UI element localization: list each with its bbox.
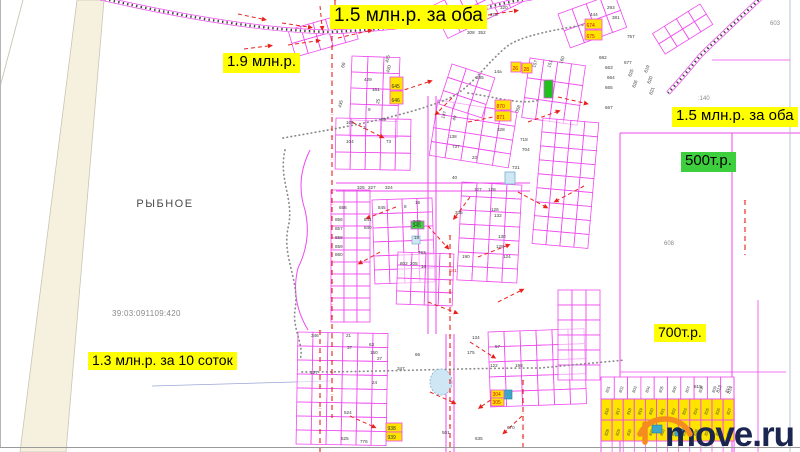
svg-text:293: 293	[607, 5, 615, 10]
svg-text:621: 621	[648, 86, 655, 95]
svg-text:663: 663	[605, 65, 613, 70]
svg-text:656: 656	[339, 205, 347, 210]
svg-text:860: 860	[335, 252, 343, 257]
svg-text:63: 63	[369, 342, 375, 347]
svg-text:381: 381	[612, 15, 620, 20]
svg-text:132: 132	[494, 213, 502, 218]
svg-text:150: 150	[370, 350, 378, 355]
svg-text:619: 619	[643, 64, 650, 73]
svg-text:871: 871	[497, 115, 506, 121]
highlight-parcel	[544, 80, 553, 98]
svg-text:127: 127	[310, 370, 318, 375]
price-label: 500т.р.	[681, 152, 736, 172]
svg-text:16: 16	[421, 264, 427, 269]
map-linework: 8018028038048058068078088098108168178188…	[0, 0, 800, 452]
svg-text:718: 718	[520, 137, 528, 142]
svg-text:737: 737	[452, 144, 460, 149]
svg-text:347: 347	[397, 366, 405, 371]
svg-text:198: 198	[515, 363, 523, 368]
svg-text:320: 320	[500, 5, 508, 10]
svg-text:122: 122	[490, 363, 498, 368]
svg-text:104: 104	[346, 139, 354, 144]
svg-text:731: 731	[512, 165, 520, 170]
svg-text:327: 327	[368, 185, 376, 190]
svg-text:665: 665	[605, 85, 613, 90]
svg-text:444: 444	[590, 12, 598, 17]
svg-text::140: :140	[698, 96, 710, 102]
svg-text:845: 845	[378, 205, 386, 210]
highlight-parcel: 304	[491, 390, 504, 398]
svg-text:308: 308	[467, 30, 475, 35]
svg-text:524: 524	[344, 410, 352, 415]
svg-text:525: 525	[341, 436, 349, 441]
svg-text:635: 635	[475, 436, 483, 441]
svg-text:859: 859	[335, 244, 343, 249]
svg-text:870: 870	[497, 104, 506, 110]
svg-text:190: 190	[462, 254, 470, 259]
svg-text:358: 358	[514, 104, 521, 113]
cadastral-map: 8018028038048058068078088098108168178188…	[0, 0, 800, 452]
map-border-bottom	[0, 447, 800, 448]
svg-text:757: 757	[627, 34, 635, 39]
svg-text:128: 128	[488, 187, 496, 192]
price-label: 700т.р.	[654, 324, 706, 342]
svg-text:57: 57	[495, 344, 501, 349]
svg-text:841: 841	[364, 217, 372, 222]
svg-text:346: 346	[311, 333, 319, 338]
svg-text:126: 126	[491, 207, 499, 212]
svg-text:21: 21	[346, 333, 352, 338]
svg-text:375: 375	[490, 12, 498, 17]
highlight-parcel: 939	[386, 432, 402, 441]
svg-text:675: 675	[587, 34, 596, 40]
svg-text:857: 857	[335, 226, 343, 231]
svg-text:2: 2	[363, 125, 366, 130]
svg-text:129: 129	[496, 244, 504, 249]
svg-text:16: 16	[415, 200, 421, 205]
price-label: 1.9 млн.р.	[223, 53, 300, 73]
svg-text:815: 815	[694, 384, 702, 389]
svg-text:105: 105	[346, 120, 354, 125]
price-label: 1.5 млн.р. за оба	[330, 5, 487, 29]
price-label: 1.3 млн.р. за 10 соток	[88, 352, 237, 370]
svg-text:73: 73	[386, 139, 392, 144]
svg-text:69: 69	[381, 117, 387, 122]
svg-text:124: 124	[503, 254, 511, 259]
svg-text:27: 27	[377, 356, 383, 361]
map-border-left	[0, 0, 1, 447]
svg-text:26: 26	[513, 66, 519, 72]
highlight-parcel: 871	[495, 111, 511, 121]
svg-text:501: 501	[442, 430, 450, 435]
highlight-parcel: 674	[585, 19, 602, 29]
svg-text:620: 620	[646, 75, 653, 84]
svg-text:28: 28	[524, 67, 530, 73]
svg-text:670: 670	[507, 425, 515, 430]
svg-text:9: 9	[368, 107, 371, 112]
svg-text:305: 305	[493, 400, 502, 406]
price-label: 1.5 млн.р. за оба	[672, 107, 798, 127]
svg-text:625: 625	[627, 68, 634, 77]
svg-text:205: 205	[410, 261, 418, 266]
svg-text:23: 23	[472, 155, 478, 160]
svg-text:939: 939	[388, 435, 397, 441]
svg-text:682: 682	[599, 55, 607, 60]
highlight-parcel: 938	[386, 423, 402, 432]
svg-text:856: 856	[335, 217, 343, 222]
svg-text:175: 175	[467, 350, 475, 355]
svg-text:138: 138	[449, 134, 457, 139]
svg-text:37: 37	[347, 345, 353, 350]
svg-text:335: 335	[455, 210, 463, 215]
moveru-watermark: move.ru	[665, 418, 794, 451]
svg-text:664: 664	[607, 75, 615, 80]
svg-text:328: 328	[497, 127, 505, 132]
svg-text:858: 858	[335, 235, 343, 240]
highlight-parcel: 26	[511, 62, 521, 72]
svg-text:352: 352	[478, 30, 486, 35]
svg-text:763: 763	[418, 250, 426, 255]
svg-text:645: 645	[392, 84, 401, 90]
svg-text:40: 40	[452, 175, 458, 180]
highlight-parcel: 28	[522, 63, 532, 73]
svg-text:348: 348	[413, 219, 421, 224]
highlight-parcel: 870	[495, 100, 511, 110]
svg-text:19: 19	[414, 235, 420, 240]
svg-text:325: 325	[357, 185, 365, 190]
svg-text:841: 841	[449, 268, 457, 273]
svg-text:134: 134	[472, 335, 480, 340]
svg-text:626: 626	[631, 79, 638, 88]
svg-text:704: 704	[522, 147, 530, 152]
place-label: РЫБНОЕ	[120, 198, 210, 210]
svg-text:304: 304	[493, 392, 502, 398]
svg-text:130: 130	[498, 234, 506, 239]
highlight-parcel: 645	[390, 77, 403, 90]
svg-text:674: 674	[587, 23, 596, 29]
highlight-parcel: 305	[491, 398, 504, 406]
svg-text:127: 127	[474, 187, 482, 192]
svg-text:840: 840	[364, 225, 372, 230]
svg-text:802: 802	[400, 261, 408, 266]
svg-text:60: 60	[340, 62, 346, 69]
svg-text:667: 667	[605, 105, 613, 110]
svg-text:776: 776	[360, 439, 368, 444]
svg-text:646: 646	[392, 98, 401, 104]
cadastral-number: 39:03:091109:420	[112, 309, 181, 318]
svg-text:603: 603	[770, 21, 781, 27]
svg-text:24: 24	[372, 380, 378, 385]
svg-text:285: 285	[476, 75, 484, 80]
svg-text:608: 608	[664, 241, 675, 247]
svg-text:938: 938	[388, 426, 397, 432]
svg-text:66: 66	[415, 352, 421, 357]
svg-text:14а: 14а	[494, 69, 502, 74]
svg-text:324: 324	[385, 185, 393, 190]
svg-text:8: 8	[404, 204, 407, 209]
svg-text:677: 677	[624, 60, 632, 65]
house-icon	[637, 410, 693, 450]
svg-text:429: 429	[364, 77, 372, 82]
highlight-parcel: 646	[390, 91, 403, 104]
highlight-parcel: 675	[585, 30, 602, 40]
svg-text:435: 435	[337, 99, 344, 108]
svg-text:161: 161	[372, 87, 380, 92]
